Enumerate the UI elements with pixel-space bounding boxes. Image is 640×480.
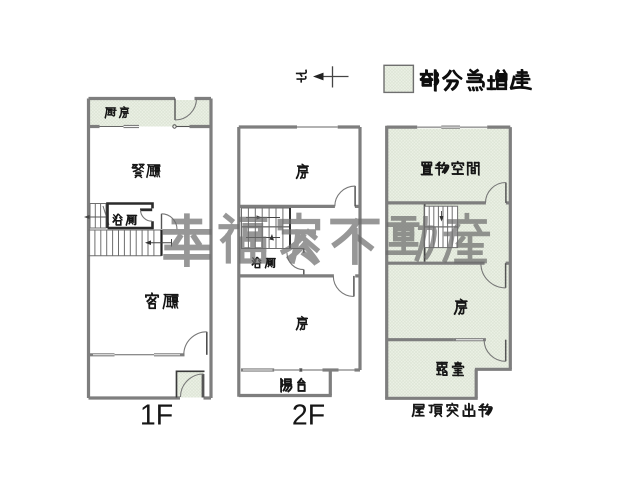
svg-text:2F: 2F <box>292 399 325 431</box>
svg-text:1F: 1F <box>140 399 173 431</box>
